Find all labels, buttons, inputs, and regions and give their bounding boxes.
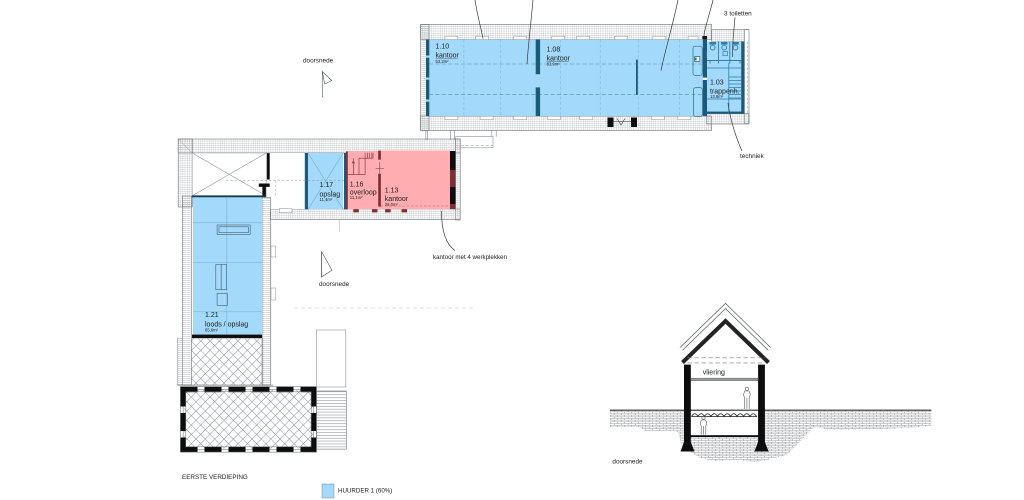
svg-text:1.03: 1.03 bbox=[710, 80, 724, 87]
svg-text:doorsnede: doorsnede bbox=[303, 58, 334, 65]
svg-text:doorsnede: doorsnede bbox=[319, 281, 350, 288]
svg-text:HUURDER 1 (60%): HUURDER 1 (60%) bbox=[338, 488, 392, 495]
svg-text:EERSTE VERDIEPING: EERSTE VERDIEPING bbox=[182, 474, 248, 481]
svg-text:doorsnede: doorsnede bbox=[612, 459, 643, 466]
svg-text:53,2m²: 53,2m² bbox=[436, 59, 450, 64]
svg-text:vliering: vliering bbox=[703, 370, 725, 377]
svg-text:11,4m²: 11,4m² bbox=[320, 197, 333, 202]
svg-text:65,6m²: 65,6m² bbox=[205, 328, 219, 333]
svg-text:1.21: 1.21 bbox=[205, 312, 219, 319]
svg-text:1.10: 1.10 bbox=[436, 44, 450, 51]
svg-text:kantoor met 4 werkplekken: kantoor met 4 werkplekken bbox=[433, 254, 508, 261]
svg-text:1.16: 1.16 bbox=[350, 181, 364, 188]
svg-text:techniek: techniek bbox=[740, 153, 765, 160]
svg-text:3 toiletten: 3 toiletten bbox=[724, 11, 752, 18]
svg-text:1.08: 1.08 bbox=[547, 47, 561, 54]
svg-text:1.13: 1.13 bbox=[385, 188, 399, 195]
svg-text:83,9m²: 83,9m² bbox=[547, 61, 561, 66]
svg-text:11,1m²: 11,1m² bbox=[350, 195, 363, 200]
svg-text:1.17: 1.17 bbox=[320, 182, 334, 189]
svg-text:13,6m²: 13,6m² bbox=[710, 94, 724, 99]
